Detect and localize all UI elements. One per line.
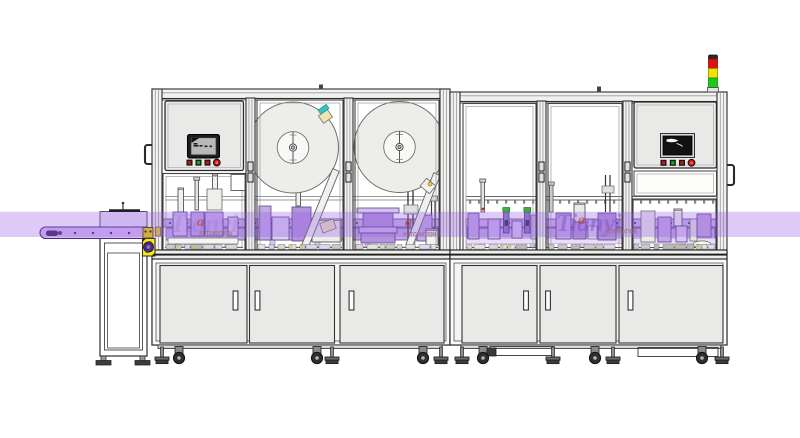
svg-text:a: a — [578, 213, 585, 228]
svg-text:a: a — [197, 215, 204, 230]
svg-text:AUTOMATION: AUTOMATION — [403, 232, 436, 239]
svg-text:AUTOMATION: AUTOMATION — [604, 229, 637, 236]
svg-text:AUTOMATION: AUTOMATION — [199, 231, 232, 238]
svg-text:a: a — [405, 215, 412, 230]
